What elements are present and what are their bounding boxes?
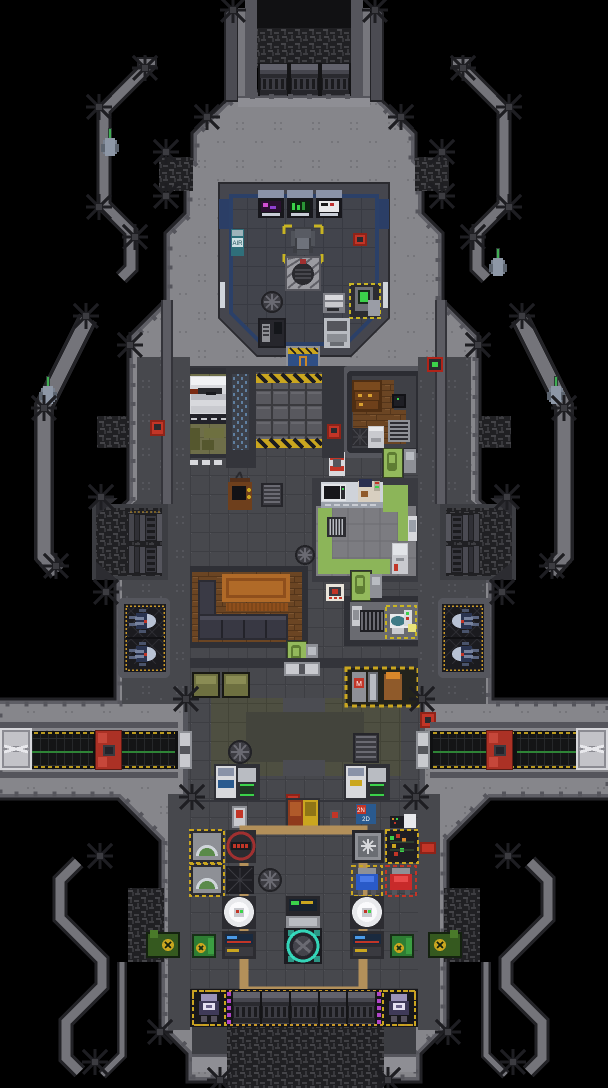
svg-text:2N: 2N <box>357 808 365 814</box>
svg-text:M: M <box>356 681 362 688</box>
svg-text:2D: 2D <box>362 817 370 823</box>
svg-text:AIR: AIR <box>232 241 243 247</box>
